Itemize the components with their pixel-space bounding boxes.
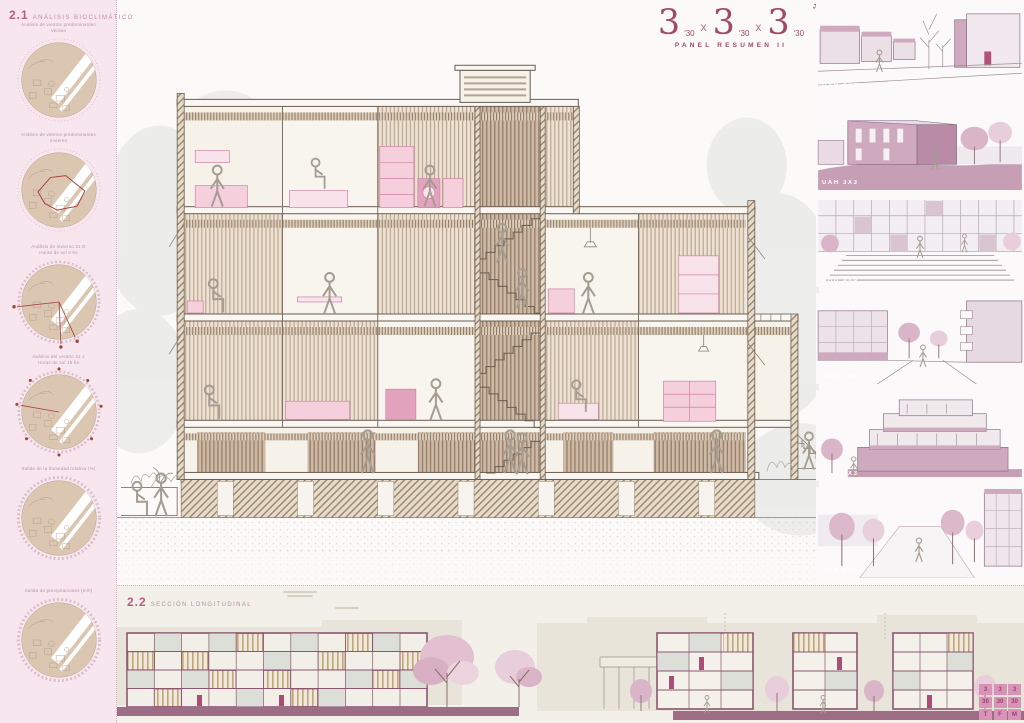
precipitation-chart	[15, 596, 103, 684]
logo-times: x	[755, 20, 761, 34]
left-facade	[127, 633, 427, 707]
render-watermark: UAH 3X3	[822, 568, 859, 574]
bio-diagram-label: Análisis de invierno 21 DHoras de sol 8 …	[0, 244, 117, 256]
corner-logo-cell: 3	[994, 684, 1007, 695]
bio-diagram-precipitation: Salida de precipitaciones (mm)	[0, 588, 117, 689]
render-watermark: UAH 3X3	[822, 471, 859, 477]
render-terraced-massing: UAH 3X3	[816, 390, 1024, 481]
render-1-graphic	[816, 2, 1024, 93]
humidity-chart	[15, 474, 103, 562]
render-street-view: UAH 3X3	[816, 293, 1024, 384]
right-plinth	[673, 711, 1024, 720]
left-garden	[121, 467, 181, 515]
wind-rose-winter-chart	[15, 146, 103, 234]
corner-logo-cell: 30	[1008, 697, 1021, 708]
logo-digit: 3	[713, 8, 735, 40]
wind-rose-summer-chart	[15, 36, 103, 124]
section-22-number: 2.2	[127, 595, 147, 609]
render-watermark: UAH 3X3	[822, 374, 859, 380]
section-21-title: ANÁLISIS BIOCLIMÁTICO	[33, 15, 134, 21]
render-plaza-stairs: UAH 3X3	[816, 196, 1024, 287]
micro-annotation	[287, 595, 313, 597]
render-watermark: UAH 3X3	[822, 180, 859, 186]
micro-annotation	[283, 591, 317, 593]
foundation	[181, 479, 755, 517]
ground-texture	[117, 518, 819, 582]
longitudinal-section-band: 2.2SECCIÓN LONGITUDINAL	[117, 585, 1024, 723]
corner-logo-cell: 30	[994, 697, 1007, 708]
corner-logo-cell: M	[1008, 709, 1021, 720]
bio-diagram-label: Salida de precipitaciones (mm)	[0, 588, 117, 594]
building-section-area	[117, 50, 819, 585]
render-3-graphic	[816, 196, 1024, 287]
logo-subscript: '30	[794, 29, 804, 38]
panel-page: 2.1ANÁLISIS BIOCLIMÁTICO Análisis de vie…	[0, 0, 1024, 723]
render-street-perspective: UAH 3X3	[816, 2, 1024, 93]
logo-times: x	[701, 20, 707, 34]
logo-digit: 3	[658, 8, 680, 40]
corner-logo-cell: 3	[979, 684, 992, 695]
left-plinth	[117, 707, 519, 716]
logo-subscript: '30	[739, 29, 749, 38]
section-21-number: 2.1	[9, 8, 29, 22]
bio-diagram-label: Análisis del verano 21 JHoras de sol 15 …	[0, 354, 117, 366]
micro-annotation	[335, 607, 359, 609]
logo-subscript: '30	[684, 29, 694, 38]
panel-logo: 3 '30 x 3 '30 x 3 '30 ✈ PANEL RESUMEN II	[645, 8, 817, 49]
bio-diagram-label: Análisis de vientos predominantesInviern…	[0, 132, 117, 144]
bioclimatic-sidebar: 2.1ANÁLISIS BIOCLIMÁTICO Análisis de vie…	[0, 0, 117, 723]
building-section-drawing	[117, 50, 819, 585]
render-6-graphic	[816, 487, 1024, 578]
render-4-graphic	[816, 293, 1024, 384]
bio-diagram-winter-sun: Análisis de invierno 21 DHoras de sol 8 …	[0, 244, 117, 351]
section-22-header: 2.2SECCIÓN LONGITUDINAL	[127, 593, 252, 611]
roof-monitor	[455, 65, 535, 102]
logo-row: 3 '30 x 3 '30 x 3 '30 ✈	[645, 8, 817, 40]
corner-logo-cell: F	[994, 709, 1007, 720]
corner-logo-cell: 3	[1008, 684, 1021, 695]
corner-logo-cell: 30	[979, 697, 992, 708]
render-5-graphic	[816, 390, 1024, 481]
render-boulevard: UAH 3X3	[816, 487, 1024, 578]
bio-diagram-label: Salida de la humedad relativa (%)	[0, 466, 117, 472]
summer-sun-chart	[15, 368, 103, 456]
section-block-3	[893, 633, 973, 709]
section-22-title: SECCIÓN LONGITUDINAL	[151, 602, 252, 608]
logo-digit: 3	[767, 8, 789, 40]
corner-logo-cell: T	[979, 709, 992, 720]
elevation-drawing	[117, 612, 1024, 723]
tfm-corner-logo: 3 3 3 30 30 30 T F M	[979, 684, 1021, 720]
bio-diagram-summer-sun: Análisis del verano 21 JHoras de sol 15 …	[0, 354, 117, 461]
bio-diagram-wind-winter: Análisis de vientos predominantesInviern…	[0, 132, 117, 239]
render-watermark: UAH 3X3	[822, 277, 859, 283]
bio-diagram-label: Análisis de vientos predominantesVerano	[0, 22, 117, 34]
render-2-graphic	[816, 99, 1024, 190]
winter-sun-chart	[15, 258, 103, 346]
bio-diagram-wind-summer: Análisis de vientos predominantesVerano	[0, 22, 117, 129]
bio-diagram-humidity: Salida de la humedad relativa (%)	[0, 466, 117, 567]
render-corner-massing: UAH 3X3	[816, 99, 1024, 190]
render-watermark: UAH 3X3	[822, 83, 859, 89]
render-column: UAH 3X3 UAH 3X3	[816, 0, 1024, 586]
